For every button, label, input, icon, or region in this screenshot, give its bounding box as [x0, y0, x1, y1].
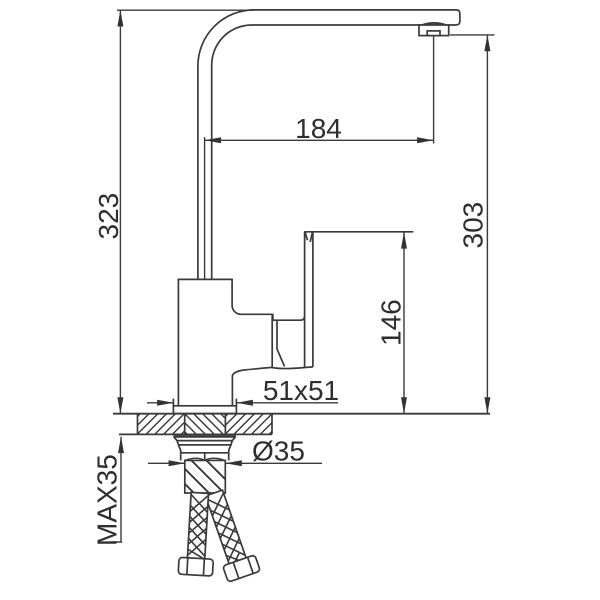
svg-text:323: 323: [93, 193, 124, 240]
svg-text:184: 184: [295, 113, 342, 144]
svg-text:Ø35: Ø35: [252, 435, 305, 466]
svg-text:146: 146: [376, 299, 407, 346]
svg-text:MAX35: MAX35: [91, 454, 122, 546]
svg-text:303: 303: [458, 202, 489, 249]
svg-text:51x51: 51x51: [263, 375, 339, 406]
